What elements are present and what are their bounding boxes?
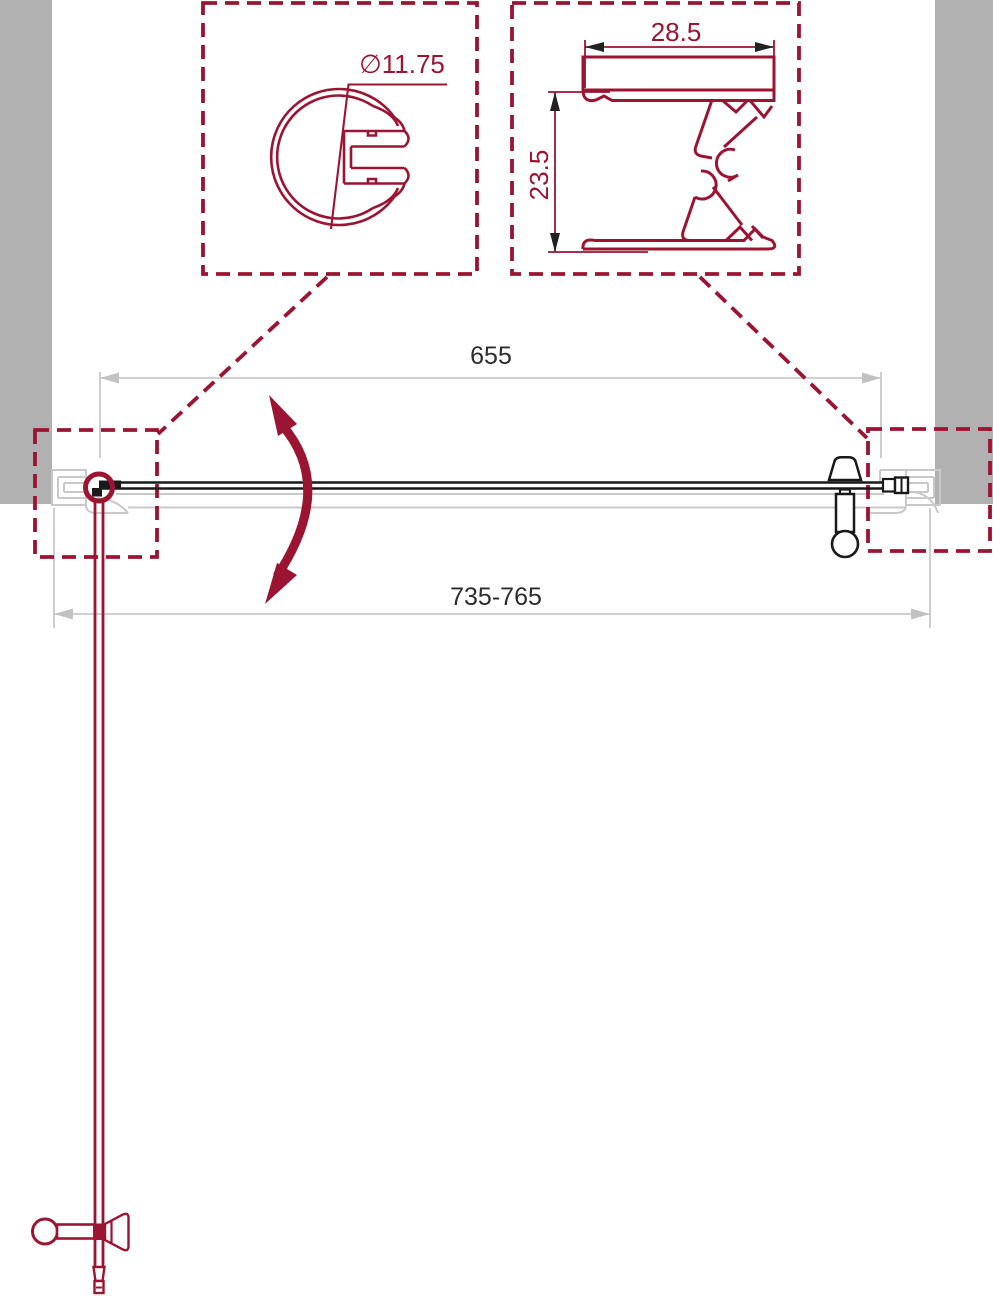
wall-profile-height-label: 23.5 (524, 135, 550, 215)
round-profile-section (271, 85, 447, 230)
glass-width-dimension-label: 655 (441, 342, 541, 371)
hinge-pivot (86, 474, 122, 501)
wall-profile-width-label: 28.5 (636, 17, 716, 48)
door-open-end-cap (94, 1267, 105, 1293)
drawing-layer (0, 0, 993, 1296)
detail-box-round-profile (203, 3, 477, 274)
door-closed-glass (100, 478, 908, 494)
door-open-glass (94, 500, 105, 1293)
dimension-655 (100, 372, 881, 458)
door-swing-arrow (265, 395, 308, 604)
handle-open (33, 1214, 129, 1250)
threshold-ghost-lines (116, 494, 906, 508)
technical-drawing-canvas: ∅11.75 28.5 23.5 655 735-765 (0, 0, 993, 1296)
opening-range-dimension-label: 735-765 (421, 583, 571, 612)
round-profile-diameter-label: ∅11.75 (352, 49, 452, 80)
door-end-cap (883, 478, 908, 494)
wall-profile-section (548, 40, 775, 252)
